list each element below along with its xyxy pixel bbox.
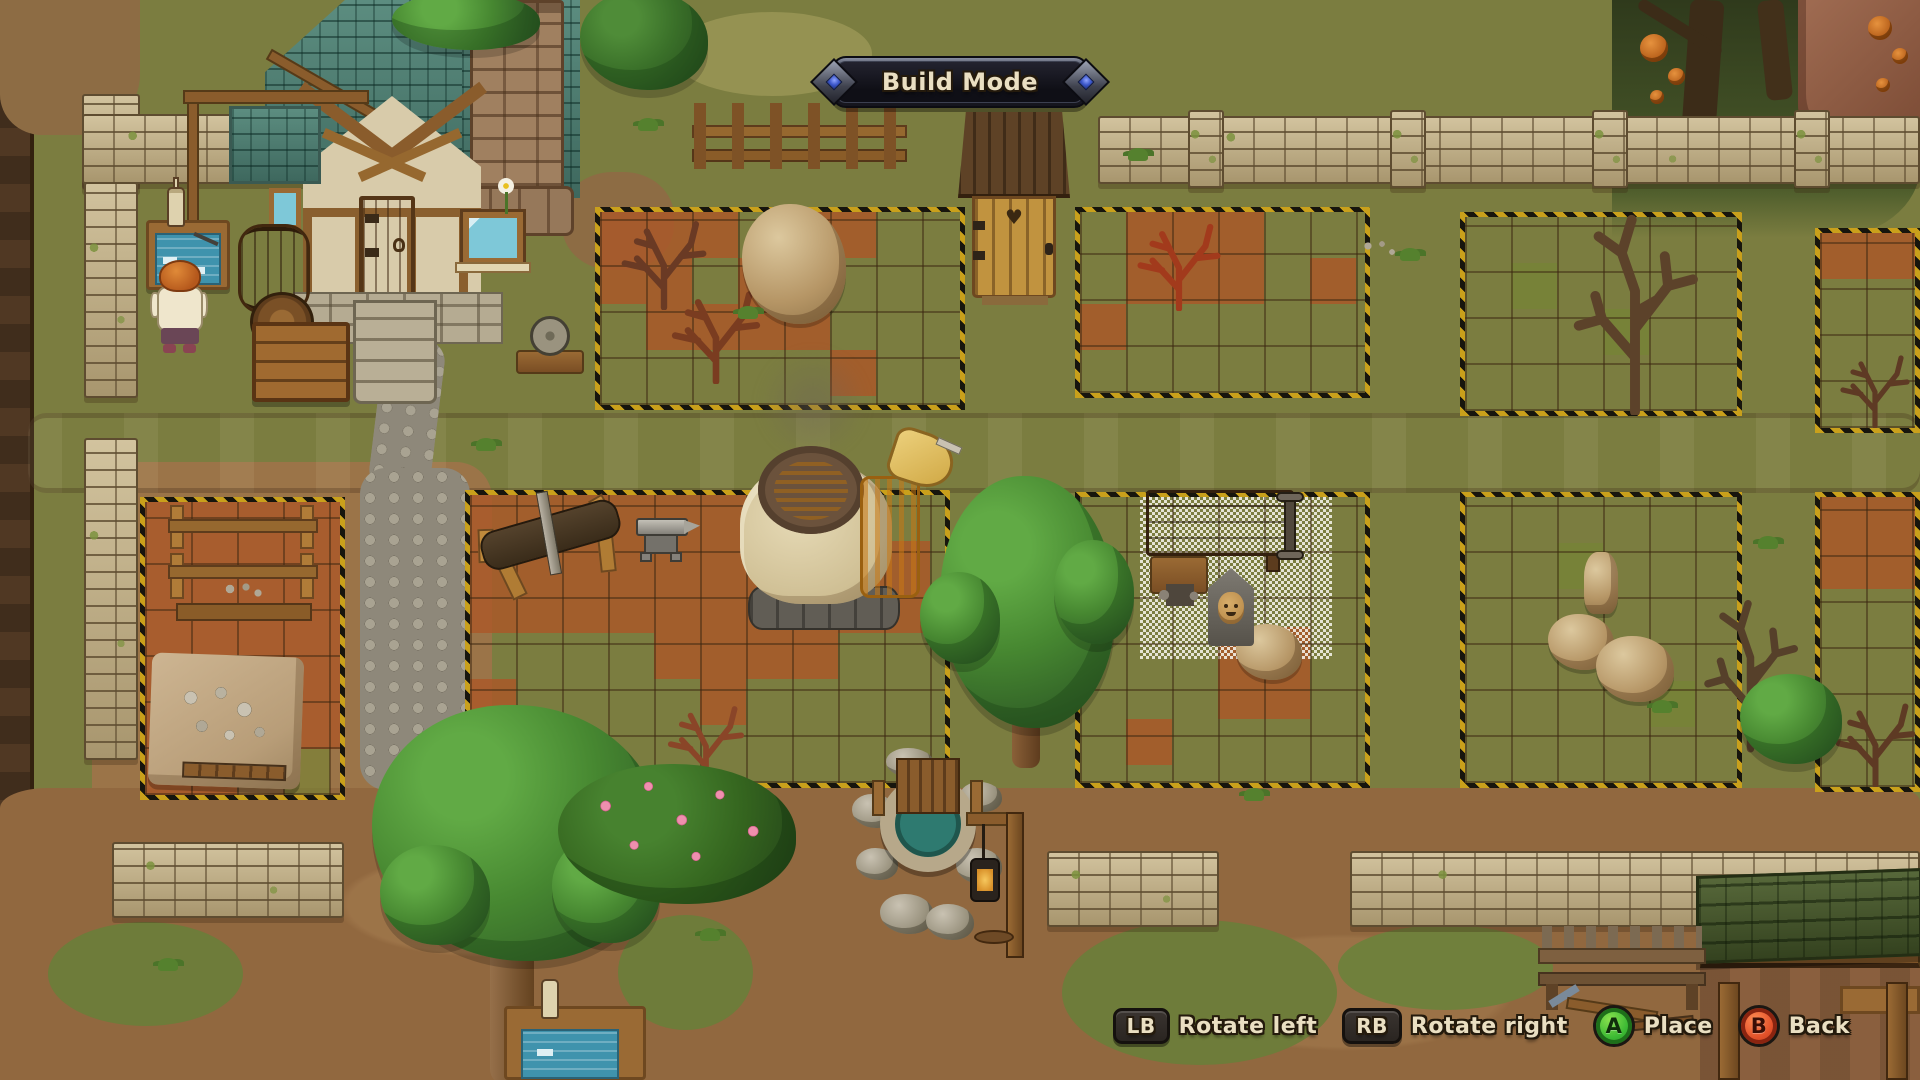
grass-tuft bbox=[1758, 536, 1778, 549]
grass-tuft bbox=[476, 438, 496, 451]
grindstone[interactable] bbox=[516, 316, 584, 378]
hint-rotate-left[interactable]: LB Rotate left bbox=[1113, 1008, 1318, 1044]
rack-rail bbox=[1538, 972, 1706, 986]
outhouse-roof bbox=[958, 112, 1070, 198]
outhouse-body: ♥ bbox=[972, 196, 1056, 298]
lean-to-post bbox=[187, 102, 199, 224]
anvil-base bbox=[644, 534, 678, 554]
grass-tuft bbox=[1244, 788, 1264, 801]
grass-tuft bbox=[1652, 700, 1672, 713]
flower-stem bbox=[505, 192, 508, 214]
furnace-fire-chute bbox=[860, 476, 920, 598]
window-sill bbox=[455, 262, 531, 273]
furnace-mouth-fire bbox=[774, 460, 848, 520]
lantern-post[interactable] bbox=[966, 808, 1026, 958]
outhouse-step bbox=[982, 296, 1048, 305]
bottle bbox=[167, 187, 185, 227]
shed-post bbox=[1886, 982, 1908, 1080]
lean-to-beam bbox=[183, 90, 369, 104]
hint-rotate-right[interactable]: RB Rotate right bbox=[1342, 1008, 1568, 1044]
rb-button-icon[interactable]: RB bbox=[1342, 1008, 1402, 1044]
lantern bbox=[970, 858, 1000, 902]
lean-to-roof bbox=[229, 106, 321, 184]
well-windlass-slats bbox=[896, 758, 960, 814]
furnace-smoke bbox=[758, 348, 868, 458]
build-mode-title: Build Mode bbox=[831, 56, 1089, 108]
tarp-wood-edge bbox=[182, 762, 286, 782]
wall-column bbox=[1592, 110, 1628, 188]
shrine-eye bbox=[1224, 604, 1228, 608]
shed-bench bbox=[1840, 986, 1920, 1014]
stone-wall-mid-bottom bbox=[1047, 851, 1219, 927]
mushroom bbox=[1640, 34, 1668, 62]
player-shoe bbox=[183, 344, 196, 353]
bush-top bbox=[580, 0, 708, 90]
rope-coil bbox=[974, 930, 1014, 944]
player-shirt bbox=[157, 286, 203, 332]
well-windlass-post bbox=[872, 780, 885, 816]
dead-bush[interactable] bbox=[1835, 348, 1915, 428]
grass-tuft bbox=[738, 306, 758, 319]
door-hinge bbox=[365, 248, 379, 257]
rose-flowers bbox=[558, 764, 796, 904]
mushroom bbox=[1650, 90, 1664, 104]
wall-column bbox=[1794, 110, 1830, 188]
game-viewport: ♥ bbox=[0, 0, 1920, 1080]
outhouse-heart: ♥ bbox=[1005, 205, 1023, 229]
grass-tuft bbox=[158, 958, 178, 971]
stone-wall-left-a bbox=[84, 182, 138, 398]
mushroom bbox=[1868, 16, 1892, 40]
grass-tuft bbox=[1400, 248, 1420, 261]
shrine-eye bbox=[1234, 604, 1238, 608]
grass-tuft bbox=[638, 118, 658, 131]
lb-button-icon[interactable]: LB bbox=[1113, 1008, 1170, 1044]
mushroom bbox=[1668, 68, 1685, 85]
hint-label: Back bbox=[1789, 1014, 1850, 1039]
stone-steps bbox=[353, 300, 437, 404]
player-character bbox=[150, 258, 210, 354]
vise-handle bbox=[1276, 492, 1304, 502]
lantern-glass bbox=[977, 869, 993, 891]
stones-on-tarp bbox=[171, 681, 278, 755]
build-mode-banner: Build Mode bbox=[831, 56, 1089, 108]
pebbles bbox=[220, 579, 268, 601]
hint-label: Rotate right bbox=[1411, 1014, 1568, 1039]
stone-tarp[interactable] bbox=[148, 652, 305, 789]
outhouse-hinge bbox=[973, 251, 985, 260]
vise-handle bbox=[1276, 550, 1304, 560]
player-pants bbox=[161, 328, 199, 344]
grass-patch bbox=[1338, 925, 1553, 1010]
tree-canopy-lump bbox=[380, 845, 490, 945]
wall-column bbox=[1390, 110, 1426, 188]
player-hair bbox=[159, 260, 201, 292]
mushroom bbox=[1892, 48, 1908, 64]
stone-wall-left-b bbox=[84, 438, 138, 760]
lantern-hook bbox=[982, 824, 985, 860]
tree-center bbox=[938, 476, 1118, 776]
pebbles bbox=[1360, 236, 1400, 260]
dead-bush[interactable] bbox=[1828, 695, 1920, 787]
tree-canopy-lump bbox=[1054, 540, 1134, 644]
drafting-table-bottom[interactable] bbox=[504, 1006, 646, 1080]
wooden-crate[interactable] bbox=[252, 322, 350, 402]
b-button-icon[interactable]: B bbox=[1738, 1005, 1780, 1047]
fence-pickets bbox=[694, 103, 906, 169]
door-ornament bbox=[393, 238, 405, 252]
rack-rail bbox=[168, 565, 318, 579]
hint-back[interactable]: B Back bbox=[1738, 1005, 1850, 1047]
anvil-foot bbox=[670, 552, 682, 562]
standing-stone[interactable] bbox=[1584, 552, 1618, 614]
outhouse[interactable]: ♥ bbox=[958, 112, 1070, 304]
shrine-face bbox=[1218, 592, 1244, 624]
anvil[interactable] bbox=[636, 512, 700, 564]
dead-tree[interactable] bbox=[1545, 200, 1725, 415]
hint-label: Rotate left bbox=[1179, 1014, 1318, 1039]
anvil-horn bbox=[684, 520, 700, 534]
hint-place[interactable]: A Place bbox=[1593, 1005, 1713, 1047]
furnace[interactable] bbox=[740, 446, 945, 646]
shed-roof bbox=[1696, 868, 1920, 964]
grass-patch bbox=[48, 922, 243, 1026]
blueprint-paper bbox=[521, 1029, 619, 1079]
outhouse-handle bbox=[1045, 243, 1053, 255]
outhouse-hinge bbox=[973, 221, 985, 230]
workbench-top bbox=[1146, 490, 1294, 556]
bottle-neck bbox=[173, 177, 179, 189]
well-stone bbox=[880, 894, 934, 934]
tree-canopy-lump bbox=[920, 572, 1000, 664]
rose-bush bbox=[558, 764, 796, 904]
controller-hint-bar: LB Rotate left RB Rotate right A Place B… bbox=[1113, 1005, 1850, 1047]
rack-rail bbox=[1538, 948, 1706, 964]
stone-wall-bottom-left bbox=[112, 842, 344, 918]
player-shoe bbox=[163, 344, 176, 353]
dead-bush-red[interactable] bbox=[1125, 215, 1233, 311]
house-window bbox=[463, 212, 523, 264]
hint-label: Place bbox=[1644, 1014, 1713, 1039]
wall-column bbox=[1188, 110, 1224, 188]
mushroom bbox=[1876, 78, 1890, 92]
grindstone-wheel bbox=[530, 316, 570, 356]
rack-rail-bottom bbox=[176, 603, 312, 621]
bottle bbox=[541, 979, 559, 1019]
drying-rack[interactable] bbox=[168, 505, 318, 623]
paper-chip bbox=[537, 1049, 553, 1056]
grass-tuft bbox=[700, 928, 720, 941]
rack-rail bbox=[168, 519, 318, 533]
grass-tuft bbox=[1128, 148, 1148, 161]
hand-drill bbox=[1154, 584, 1206, 606]
anvil-foot bbox=[640, 552, 652, 562]
door-hinge bbox=[365, 214, 379, 223]
house-door[interactable] bbox=[359, 196, 415, 298]
a-button-icon[interactable]: A bbox=[1593, 1005, 1635, 1047]
